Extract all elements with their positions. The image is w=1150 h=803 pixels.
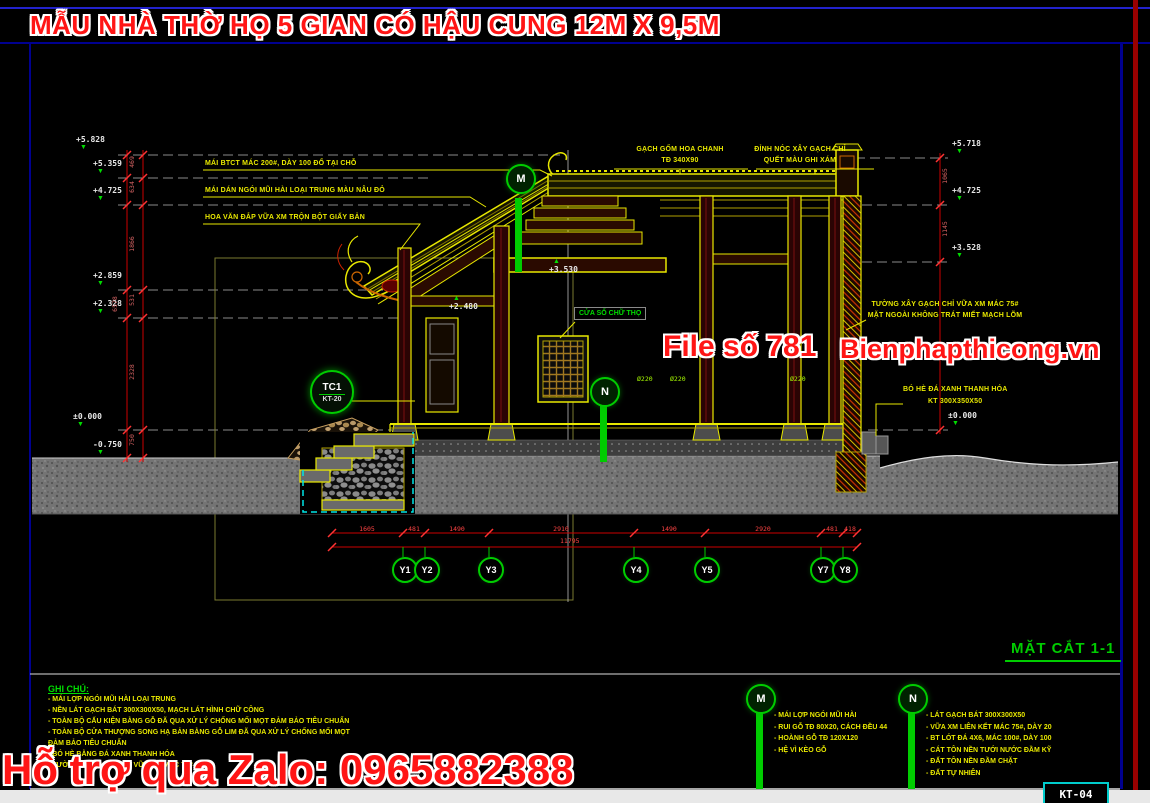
watermark-zalo: Hỗ trợ qua Zalo: 0965882388 xyxy=(2,746,573,794)
legend-line: - HỆ VÌ KÈO GỖ xyxy=(774,745,887,757)
note-line: - TOÀN BỘ CẤU KIỆN BẰNG GỖ ĐÃ QUA XỬ LÝ … xyxy=(48,716,350,727)
legend-line: - VỮA XM LIÊN KẾT MÁC 75#, DÀY 20 xyxy=(926,722,1052,734)
elevation-label: +4.725▼ xyxy=(93,186,122,202)
cad-sheet: MẪU NHÀ THỜ HỌ 5 GIAN CÓ HẬU CUNG 12M X … xyxy=(0,0,1150,803)
grid-bubble-y4: Y4 xyxy=(623,557,649,583)
curb-note: BÓ HÈ ĐÁ XANH THANH HÓA xyxy=(903,386,1008,394)
grid-dim: 481 xyxy=(826,525,838,533)
column-dia-label: Ø220 xyxy=(637,375,653,383)
legend-bubble-m: M xyxy=(746,684,776,714)
elevation-label: +3.530▲ xyxy=(549,258,578,274)
dim-label: 1866 xyxy=(128,229,136,259)
detail-callout-sheet: KT-20 xyxy=(322,396,341,403)
legend-line: - LÁT GẠCH BÁT 300X300X50 xyxy=(926,710,1052,722)
grid-dim: 2920 xyxy=(755,525,771,533)
grid-dim: 418 xyxy=(844,525,856,533)
watermark-website: Bienphapthicong.vn xyxy=(840,334,1100,365)
grid-dim: 1605 xyxy=(359,525,375,533)
elevation-label: +4.725▼ xyxy=(952,186,981,202)
elevation-label: -0.750▼ xyxy=(93,440,122,456)
column-dia-label: Ø220 xyxy=(670,375,686,383)
legend-line: - RUI GỖ TĐ 80X20, CÁCH ĐỀU 44 xyxy=(774,722,887,734)
curb-note: KT 300X350X50 xyxy=(928,398,982,406)
wall-note: MẶT NGOÀI KHÔNG TRÁT MIẾT MẠCH LÕM xyxy=(868,312,1023,320)
ridge-note: TĐ 340X90 xyxy=(661,157,698,165)
material-note: MÁI DÁN NGÓI MŨI HÀI LOẠI TRUNG MÀU NÂU … xyxy=(205,187,385,195)
elevation-label: +5.718▼ xyxy=(952,139,981,155)
grid-bubble-y3: Y3 xyxy=(478,557,504,583)
legend-line: - BT LÓT ĐÁ 4X6, MÁC 100#, DÀY 100 xyxy=(926,733,1052,745)
elevation-label: +3.528▼ xyxy=(952,243,981,259)
grid-bubble-y5: Y5 xyxy=(694,557,720,583)
sheet-number: KT-04 xyxy=(1043,782,1109,803)
grid-bubble-y8: Y8 xyxy=(832,557,858,583)
ridge-note: GẠCH GỐM HOA CHANH xyxy=(636,146,723,154)
grid-bubble-y2: Y2 xyxy=(414,557,440,583)
legend-line: - ĐẤT TỰ NHIÊN xyxy=(926,768,1052,780)
watermark-file-number: File số 781 xyxy=(663,330,816,364)
legend-bubble-n: N xyxy=(898,684,928,714)
note-line: - NỀN LÁT GẠCH BÁT 300X300X50, MẠCH LÁT … xyxy=(48,705,350,716)
elevation-label: ±0.000▼ xyxy=(73,412,102,428)
elevation-label: ±0.000▼ xyxy=(948,411,977,427)
elevation-label: +2.480▲ xyxy=(449,295,478,311)
ridge-note: QUẾT MÀU GHI XÁM xyxy=(764,157,836,165)
grid-dim: 1490 xyxy=(661,525,677,533)
legend-line: - MÁI LỢP NGÓI MŨI HÀI xyxy=(774,710,887,722)
legend-line: - ĐẤT TÔN NỀN ĐẦM CHẶT xyxy=(926,756,1052,768)
dim-label: 634 xyxy=(128,172,136,202)
dim-label: 2328 xyxy=(128,357,136,387)
legend-m-items: - MÁI LỢP NGÓI MŨI HÀI - RUI GỖ TĐ 80X20… xyxy=(774,710,887,756)
legend-n-items: - LÁT GẠCH BÁT 300X300X50 - VỮA XM LIÊN … xyxy=(926,710,1052,779)
dim-label: 1145 xyxy=(941,214,949,244)
notes-heading: GHI CHÚ: xyxy=(48,684,350,694)
section-title: MẶT CẮT 1-1 xyxy=(1005,640,1121,662)
dim-label: 1065 xyxy=(941,161,949,191)
legend-line: - HOÀNH GỖ TĐ 120X120 xyxy=(774,733,887,745)
page-title: MẪU NHÀ THỜ HỌ 5 GIAN CÓ HẬU CUNG 12M X … xyxy=(30,10,720,41)
dim-label: 531 xyxy=(128,285,136,315)
dim-label: 750 xyxy=(128,425,136,455)
callout-bubble-m: M xyxy=(506,164,536,194)
detail-callout-code: TC1 xyxy=(319,382,346,395)
material-note: HOA VĂN ĐẮP VỮA XM TRỘN BỘT GIẤY BẢN xyxy=(205,214,365,222)
grid-dim: 1490 xyxy=(449,525,465,533)
dim-total-label: 6578 xyxy=(111,289,119,319)
legend-line: - CÁT TÔN NỀN TƯỚI NƯỚC ĐẦM KỸ xyxy=(926,745,1052,757)
wall-note: TƯỜNG XÂY GẠCH CHỈ VỮA XM MÁC 75# xyxy=(871,301,1018,309)
detail-callout-tc1: TC1 KT-20 xyxy=(310,370,354,414)
note-line: - TOÀN BỘ CỬA THƯỢNG SONG HẠ BẢN BẰNG GỖ… xyxy=(48,727,350,738)
elevation-label: +5.828▼ xyxy=(76,135,105,151)
window-label: CỬA SỔ CHỮ THỌ xyxy=(574,307,646,320)
elevation-label: +5.359▼ xyxy=(93,159,122,175)
note-line: - MÁI LỢP NGÓI MŨI HÀI LOẠI TRUNG xyxy=(48,694,350,705)
material-note: MÁI BTCT MÁC 200#, DÀY 100 ĐỔ TẠI CHỖ xyxy=(205,160,357,168)
elevation-label: +2.859▼ xyxy=(93,271,122,287)
grid-total-dim: 11795 xyxy=(560,537,580,545)
ridge-note: ĐỈNH NÓC XÂY GẠCH CHỈ xyxy=(754,146,846,154)
column-dia-label: Ø220 xyxy=(790,375,806,383)
grid-dim: 481 xyxy=(408,525,420,533)
callout-bubble-n: N xyxy=(590,377,620,407)
grid-dim: 2910 xyxy=(553,525,569,533)
